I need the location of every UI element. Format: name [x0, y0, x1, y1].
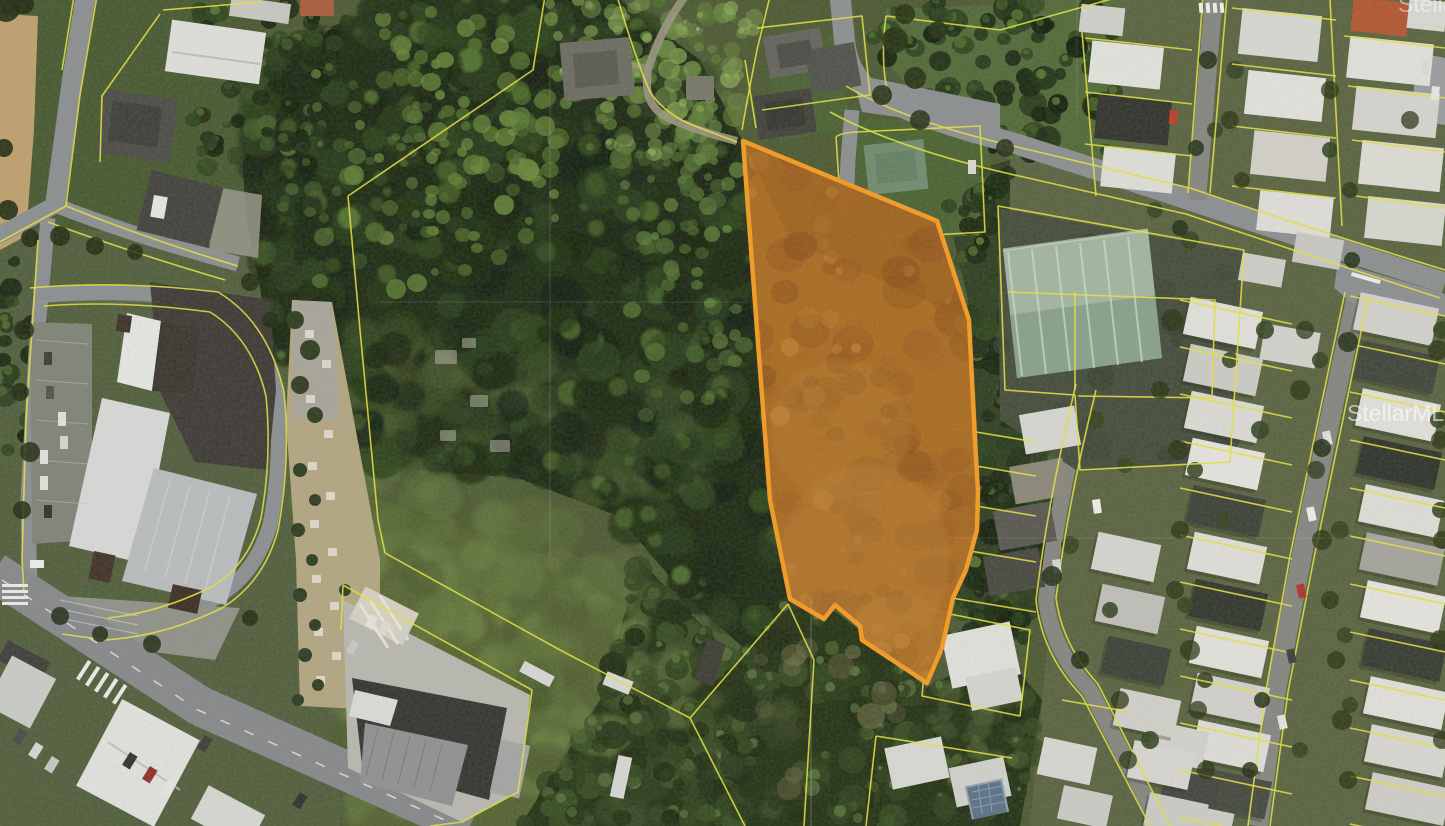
svg-text:StellarMLS: StellarMLS: [1347, 400, 1445, 426]
svg-text:Stella: Stella: [1398, 0, 1445, 17]
